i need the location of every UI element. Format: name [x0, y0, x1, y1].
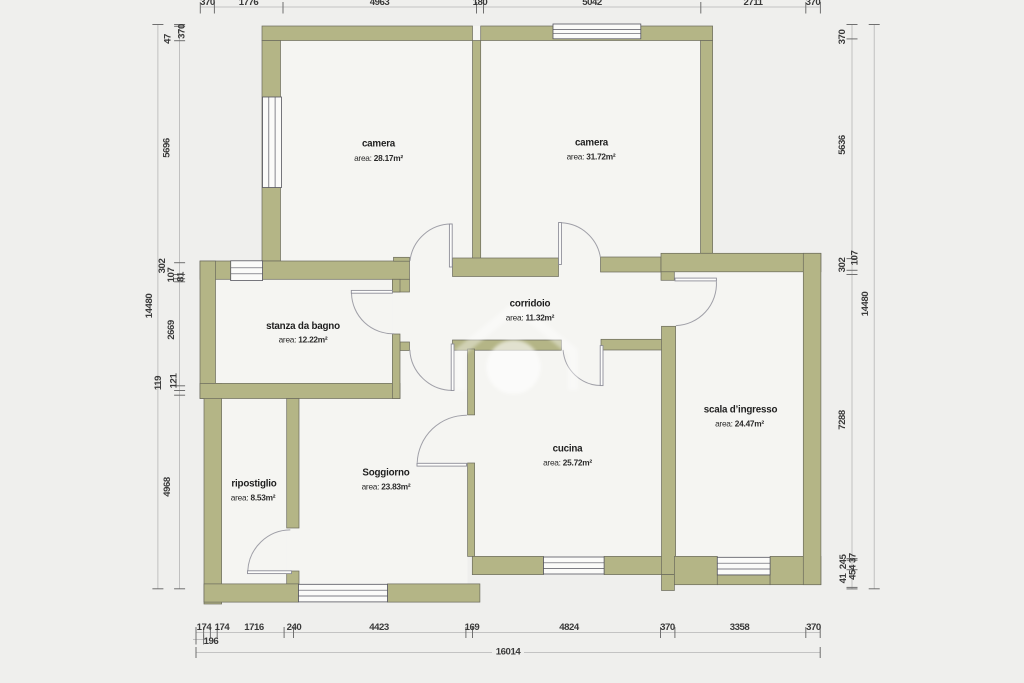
svg-text:169: 169 [465, 622, 480, 633]
svg-text:2669: 2669 [166, 320, 177, 340]
svg-text:370: 370 [806, 622, 821, 633]
svg-text:107: 107 [850, 251, 861, 266]
svg-text:3358: 3358 [730, 622, 751, 633]
svg-text:ripostiglio: ripostiglio [231, 479, 276, 490]
svg-text:370: 370 [200, 0, 215, 8]
svg-text:cucina: cucina [553, 444, 584, 455]
svg-text:174: 174 [197, 622, 213, 633]
svg-text:stanza da bagno: stanza da bagno [266, 321, 340, 332]
svg-text:camera: camera [575, 138, 609, 149]
svg-text:14480: 14480 [144, 294, 155, 319]
svg-text:370: 370 [660, 622, 675, 633]
svg-text:5696: 5696 [162, 138, 173, 158]
svg-text:scala d’ingresso: scala d’ingresso [704, 405, 778, 416]
svg-text:454 37: 454 37 [848, 553, 859, 580]
svg-text:370: 370 [177, 24, 188, 39]
svg-text:370: 370 [806, 0, 821, 8]
svg-text:5636: 5636 [837, 135, 848, 155]
svg-text:area: 25.72m²: area: 25.72m² [543, 458, 592, 468]
svg-text:area: 24.47m²: area: 24.47m² [715, 419, 764, 429]
svg-text:81: 81 [176, 271, 187, 282]
svg-text:47: 47 [163, 34, 174, 44]
svg-text:370: 370 [837, 30, 848, 45]
svg-text:196: 196 [204, 636, 219, 647]
svg-text:2711: 2711 [743, 0, 763, 8]
svg-text:119: 119 [153, 376, 164, 390]
svg-text:area: 23.83m²: area: 23.83m² [362, 482, 411, 492]
svg-text:area: 28.17m²: area: 28.17m² [354, 153, 403, 163]
svg-text:4963: 4963 [370, 0, 390, 8]
svg-text:Soggiorno: Soggiorno [362, 468, 409, 479]
svg-text:4824: 4824 [559, 622, 580, 633]
svg-text:area: 31.72m²: area: 31.72m² [567, 152, 616, 162]
svg-text:corridoio: corridoio [510, 299, 551, 310]
svg-text:174: 174 [215, 622, 231, 633]
svg-text:1716: 1716 [244, 622, 264, 633]
svg-text:16014: 16014 [496, 647, 522, 658]
svg-text:area: 12.22m²: area: 12.22m² [279, 335, 328, 345]
svg-text:4968: 4968 [162, 476, 173, 497]
svg-text:4423: 4423 [369, 622, 389, 633]
svg-text:1776: 1776 [239, 0, 259, 8]
svg-text:area: 8.53m²: area: 8.53m² [231, 493, 276, 503]
svg-text:area: 11.32m²: area: 11.32m² [506, 313, 555, 323]
svg-text:302: 302 [837, 258, 848, 273]
svg-text:7288: 7288 [837, 409, 848, 430]
svg-text:14480: 14480 [860, 292, 871, 317]
svg-text:180: 180 [473, 0, 488, 8]
svg-text:camera: camera [362, 139, 396, 150]
svg-text:240: 240 [287, 622, 302, 633]
svg-text:121: 121 [169, 373, 180, 389]
svg-text:5042: 5042 [582, 0, 602, 8]
